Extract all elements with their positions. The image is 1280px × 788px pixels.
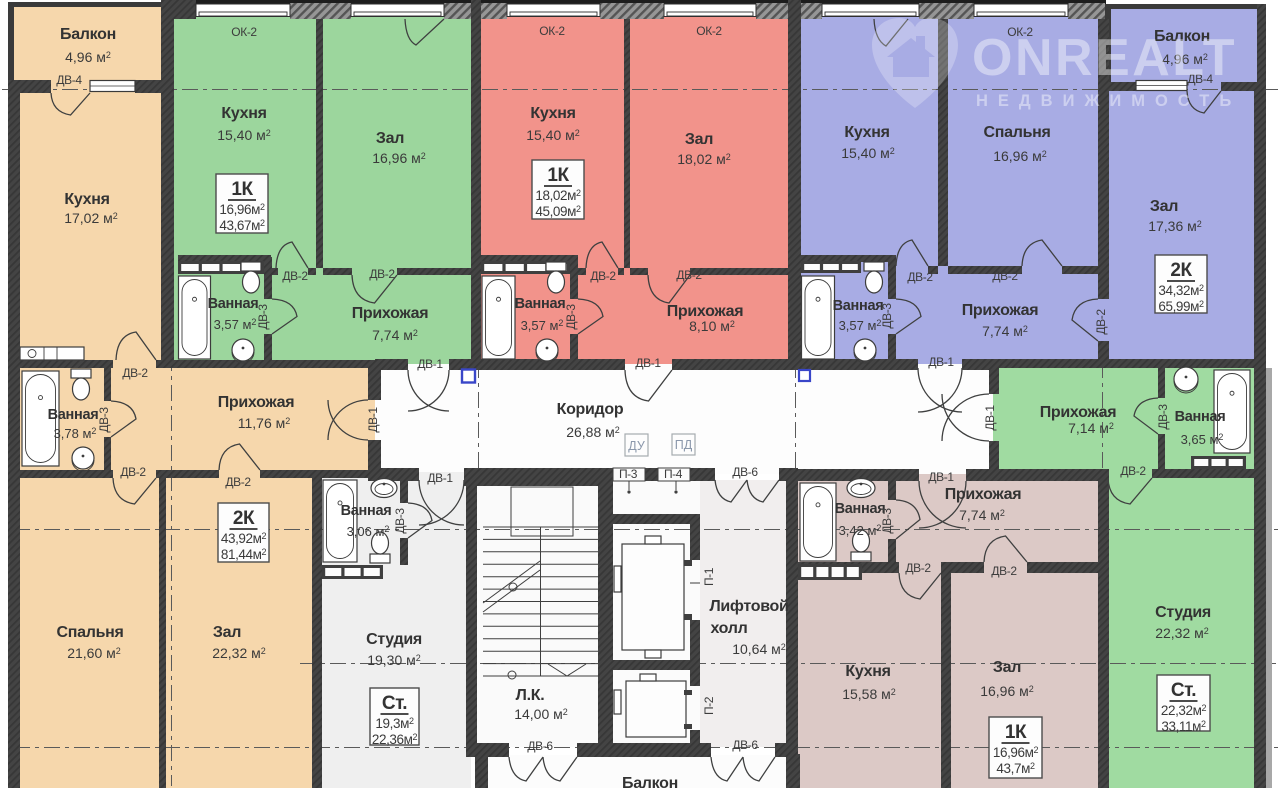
svg-text:7,74 м2: 7,74 м2 xyxy=(959,507,1005,523)
svg-text:НЕДВИЖИМОСТЬ: НЕДВИЖИМОСТЬ xyxy=(976,92,1241,110)
svg-text:ДУ: ДУ xyxy=(628,439,645,453)
svg-text:ДВ-3: ДВ-3 xyxy=(1156,404,1170,430)
svg-text:ДВ-3: ДВ-3 xyxy=(880,508,894,534)
svg-text:7,74 м2: 7,74 м2 xyxy=(982,323,1028,339)
svg-text:ДВ-2: ДВ-2 xyxy=(120,465,146,479)
svg-text:ДВ-2: ДВ-2 xyxy=(282,269,308,283)
svg-text:Студия: Студия xyxy=(1155,604,1211,621)
svg-text:ДВ-1: ДВ-1 xyxy=(635,356,661,370)
svg-text:Ванная: Ванная xyxy=(835,501,886,517)
svg-text:ДВ-2: ДВ-2 xyxy=(1120,464,1146,478)
svg-text:ОК-2: ОК-2 xyxy=(539,24,565,38)
svg-text:7,14 м2: 7,14 м2 xyxy=(1068,420,1114,436)
svg-text:1К: 1К xyxy=(231,179,253,200)
svg-text:Зал: Зал xyxy=(685,131,713,148)
svg-text:7,74 м2: 7,74 м2 xyxy=(372,327,418,343)
svg-text:ДВ-6: ДВ-6 xyxy=(527,739,553,753)
svg-text:ДВ-3: ДВ-3 xyxy=(97,407,111,433)
svg-text:3,42 м2: 3,42 м2 xyxy=(839,523,882,538)
svg-text:26,88 м2: 26,88 м2 xyxy=(566,424,620,440)
svg-text:ДВ-2: ДВ-2 xyxy=(991,564,1017,578)
svg-text:15,40 м2: 15,40 м2 xyxy=(841,145,895,161)
svg-text:3,57 м2: 3,57 м2 xyxy=(521,318,564,333)
svg-text:16,96 м2: 16,96 м2 xyxy=(980,683,1034,699)
svg-text:Прихожая: Прихожая xyxy=(962,302,1039,319)
svg-text:Ванная: Ванная xyxy=(1175,409,1226,425)
svg-text:43,7м2: 43,7м2 xyxy=(996,761,1035,776)
svg-text:17,36 м2: 17,36 м2 xyxy=(1148,218,1202,234)
svg-text:11,76 м2: 11,76 м2 xyxy=(238,415,291,431)
svg-text:3,65 м2: 3,65 м2 xyxy=(1181,432,1224,447)
svg-text:Ст.: Ст. xyxy=(382,693,407,714)
svg-text:Прихожая: Прихожая xyxy=(945,486,1022,503)
svg-text:Прихожая: Прихожая xyxy=(1040,404,1117,421)
svg-text:18,02 м2: 18,02 м2 xyxy=(677,151,731,167)
svg-text:34,32м2: 34,32м2 xyxy=(1158,283,1204,298)
svg-text:22,32м2: 22,32м2 xyxy=(1161,703,1207,718)
svg-text:ДВ-2: ДВ-2 xyxy=(369,267,395,281)
svg-text:45,09м2: 45,09м2 xyxy=(535,204,581,219)
svg-text:16,96 м2: 16,96 м2 xyxy=(993,148,1047,164)
svg-text:10,64 м2: 10,64 м2 xyxy=(732,641,786,657)
svg-text:Ванная: Ванная xyxy=(208,296,259,312)
svg-text:ОК-2: ОК-2 xyxy=(696,24,722,38)
svg-text:Ванная: Ванная xyxy=(833,298,884,314)
svg-text:18,02м2: 18,02м2 xyxy=(535,188,581,203)
svg-text:ДВ-6: ДВ-6 xyxy=(732,465,758,479)
svg-text:Спальня: Спальня xyxy=(56,624,123,641)
svg-text:2К: 2К xyxy=(1170,260,1192,281)
svg-text:П-2: П-2 xyxy=(702,696,716,715)
svg-text:Кухня: Кухня xyxy=(845,663,890,680)
svg-text:ОК-2: ОК-2 xyxy=(231,25,257,39)
svg-text:ДВ-3: ДВ-3 xyxy=(256,304,270,330)
svg-text:19,3м2: 19,3м2 xyxy=(375,716,414,731)
svg-text:Зал: Зал xyxy=(1150,198,1178,215)
svg-text:ДВ-3: ДВ-3 xyxy=(564,304,578,330)
svg-text:ДВ-6: ДВ-6 xyxy=(732,738,758,752)
svg-text:холл: холл xyxy=(710,620,747,637)
svg-text:15,40 м2: 15,40 м2 xyxy=(526,127,580,143)
svg-text:22,32 м2: 22,32 м2 xyxy=(212,645,266,661)
svg-text:ДВ-3: ДВ-3 xyxy=(880,303,894,329)
svg-text:2К: 2К xyxy=(233,508,255,529)
svg-text:21,60 м2: 21,60 м2 xyxy=(67,645,121,661)
svg-text:4,96 м2: 4,96 м2 xyxy=(65,49,111,65)
svg-text:П-4: П-4 xyxy=(664,467,683,481)
svg-text:3,06 м2: 3,06 м2 xyxy=(347,524,390,539)
svg-text:3,57 м2: 3,57 м2 xyxy=(839,318,882,333)
svg-text:ДВ-2: ДВ-2 xyxy=(1094,309,1108,335)
svg-text:Прихожая: Прихожая xyxy=(352,305,429,322)
svg-text:Ст.: Ст. xyxy=(1171,680,1196,701)
svg-text:ДВ-2: ДВ-2 xyxy=(905,561,931,575)
svg-text:ДВ-2: ДВ-2 xyxy=(992,269,1018,283)
svg-text:Ванная: Ванная xyxy=(341,503,392,519)
svg-text:ДВ-2: ДВ-2 xyxy=(225,475,251,489)
svg-text:ДВ-2: ДВ-2 xyxy=(907,270,933,284)
svg-text:П-3: П-3 xyxy=(619,467,638,481)
svg-text:19,30 м2: 19,30 м2 xyxy=(367,652,421,668)
svg-text:8,10 м2: 8,10 м2 xyxy=(689,318,735,334)
svg-text:Зал: Зал xyxy=(376,130,404,147)
svg-text:Кухня: Кухня xyxy=(530,105,575,122)
svg-text:Коридор: Коридор xyxy=(557,401,624,418)
svg-text:ДВ-1: ДВ-1 xyxy=(366,407,380,433)
svg-text:Кухня: Кухня xyxy=(221,105,266,122)
svg-text:Студия: Студия xyxy=(366,631,422,648)
svg-text:Прихожая: Прихожая xyxy=(218,394,295,411)
svg-text:33,11м2: 33,11м2 xyxy=(1161,719,1206,734)
svg-text:Л.К.: Л.К. xyxy=(516,687,545,704)
svg-text:16,96м2: 16,96м2 xyxy=(993,745,1039,760)
svg-text:ДВ-2: ДВ-2 xyxy=(590,269,616,283)
svg-text:ДВ-4: ДВ-4 xyxy=(56,73,82,87)
svg-text:Зал: Зал xyxy=(993,659,1021,676)
svg-text:ДВ-1: ДВ-1 xyxy=(983,405,997,431)
svg-text:П-1: П-1 xyxy=(702,567,716,586)
svg-text:Ванная: Ванная xyxy=(515,296,566,312)
svg-text:65,99м2: 65,99м2 xyxy=(1158,299,1204,314)
svg-text:Кухня: Кухня xyxy=(844,124,889,141)
svg-text:43,92м2: 43,92м2 xyxy=(221,531,267,546)
svg-text:22,36м2: 22,36м2 xyxy=(372,732,418,747)
svg-text:Кухня: Кухня xyxy=(64,191,109,208)
svg-text:3,78 м2: 3,78 м2 xyxy=(54,426,97,441)
svg-text:ДВ-1: ДВ-1 xyxy=(427,471,453,485)
svg-text:1К: 1К xyxy=(1005,722,1027,743)
svg-text:Ванная: Ванная xyxy=(48,407,99,423)
svg-text:15,40 м2: 15,40 м2 xyxy=(217,127,271,143)
svg-text:16,96м2: 16,96м2 xyxy=(219,202,265,217)
svg-text:14,00 м2: 14,00 м2 xyxy=(514,706,568,722)
svg-text:Балкон: Балкон xyxy=(60,26,116,43)
svg-text:Балкон: Балкон xyxy=(622,775,678,788)
svg-text:ДВ-2: ДВ-2 xyxy=(122,366,148,380)
svg-text:22,32 м2: 22,32 м2 xyxy=(1155,625,1209,641)
svg-text:16,96 м2: 16,96 м2 xyxy=(372,150,426,166)
svg-text:ДВ-1: ДВ-1 xyxy=(928,470,954,484)
svg-text:1К: 1К xyxy=(547,165,569,186)
svg-text:43,67м2: 43,67м2 xyxy=(219,218,265,233)
svg-text:ДВ-1: ДВ-1 xyxy=(417,357,443,371)
svg-text:15,58 м2: 15,58 м2 xyxy=(842,686,896,702)
svg-text:ДВ-3: ДВ-3 xyxy=(393,508,407,534)
svg-text:17,02 м2: 17,02 м2 xyxy=(64,210,118,226)
svg-text:3,57 м2: 3,57 м2 xyxy=(214,317,257,332)
svg-text:ДВ-2: ДВ-2 xyxy=(676,268,702,282)
svg-text:Спальня: Спальня xyxy=(983,124,1050,141)
svg-text:ПД: ПД xyxy=(675,438,693,452)
svg-text:ONREALT: ONREALT xyxy=(972,29,1237,87)
svg-text:Лифтовой: Лифтовой xyxy=(709,598,788,615)
svg-text:ДВ-1: ДВ-1 xyxy=(928,355,954,369)
svg-text:Зал: Зал xyxy=(213,624,241,641)
svg-text:81,44м2: 81,44м2 xyxy=(221,547,267,562)
